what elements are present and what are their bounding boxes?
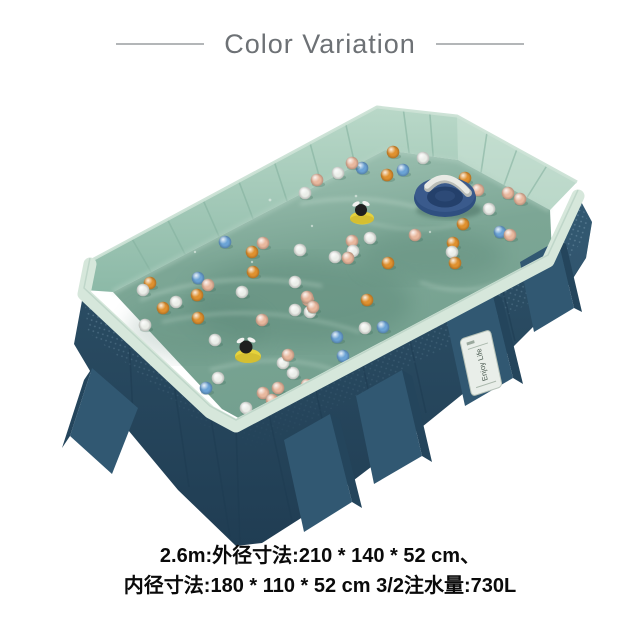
spec-line-inner: 内径寸法:180 * 110 * 52 cm 3/2注水量:730L <box>0 571 640 601</box>
product-page: Color Variation <box>0 0 640 640</box>
spec-line-outer: 2.6m:外径寸法:210 * 140 * 52 cm、 <box>0 541 640 571</box>
spec-text: 2.6m:外径寸法:210 * 140 * 52 cm、 内径寸法:180 * … <box>0 541 640 601</box>
